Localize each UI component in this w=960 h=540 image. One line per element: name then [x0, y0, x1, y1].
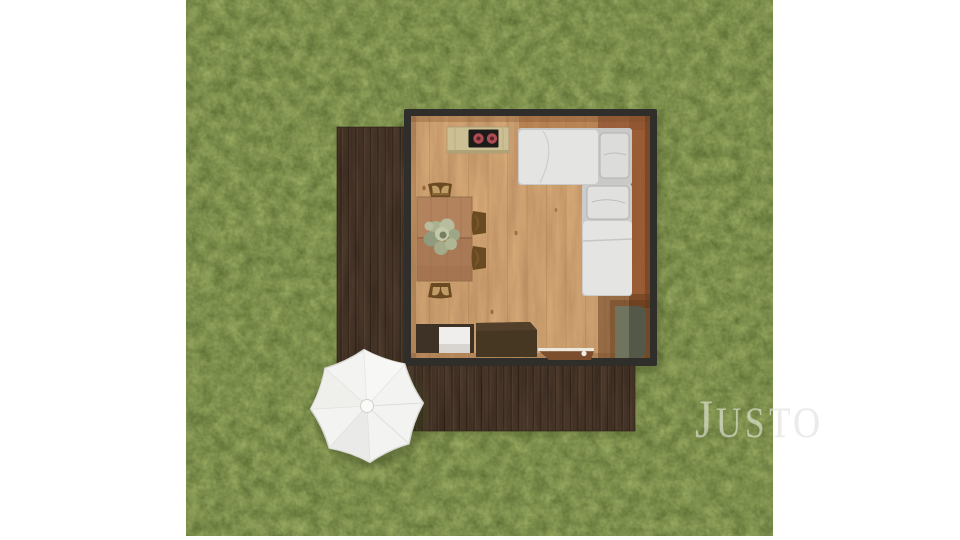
svg-text:O: O: [793, 399, 820, 447]
svg-text:J: J: [695, 389, 713, 449]
svg-text:U: U: [716, 399, 741, 447]
svg-text:S: S: [745, 399, 765, 447]
